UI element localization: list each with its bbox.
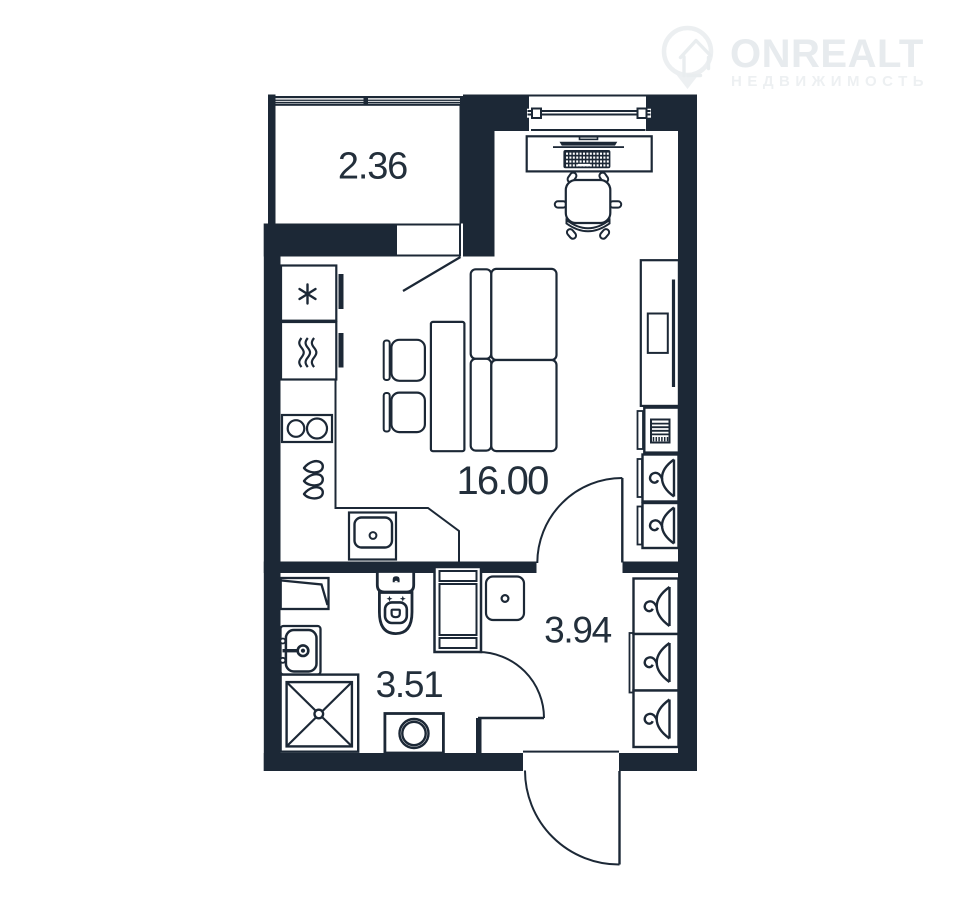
- svg-text:2.36: 2.36: [338, 146, 407, 188]
- svg-text:ONREALT: ONREALT: [730, 32, 924, 76]
- svg-text:3.51: 3.51: [376, 664, 443, 705]
- svg-text:НЕДВИЖИМОСТЬ: НЕДВИЖИМОСТЬ: [731, 73, 929, 90]
- svg-text:16.00: 16.00: [456, 459, 548, 503]
- svg-text:3.94: 3.94: [544, 610, 612, 651]
